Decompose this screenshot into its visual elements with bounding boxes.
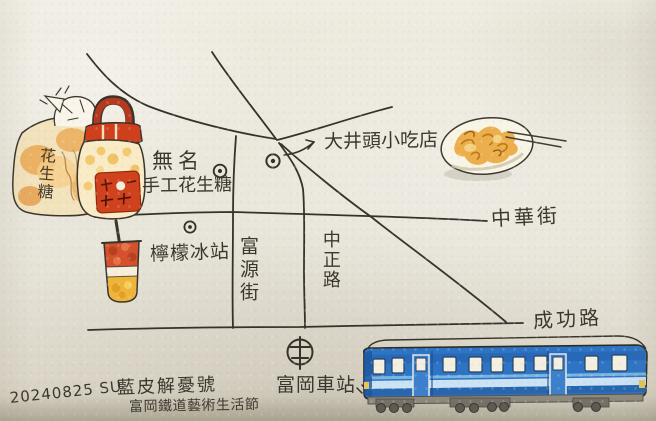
arrow-icon: [284, 140, 314, 155]
blue-train-illustration: [364, 336, 647, 413]
label-caption-festival: 富岡鐵道藝術生活節: [129, 398, 260, 415]
label-train-station: 富岡車站: [276, 376, 356, 396]
hand-drawn-map: 無名 手工花生糖 大井頭小吃店 中華街 富源街 中正路 檸檬冰站 成功路 富岡車…: [0, 0, 656, 421]
snack-dish-illustration: [438, 113, 566, 181]
lemon-drink-cup-illustration: [102, 221, 141, 302]
poi-marker-lemon-icon: [184, 221, 195, 232]
label-street-fuyuan: 富源街: [237, 236, 257, 305]
label-peanut-shop-line1: 無名: [152, 150, 204, 172]
label-lemon-ice-stand: 檸檬冰站: [150, 243, 231, 266]
street-fuyuan-line: [233, 136, 236, 328]
label-peanut-shop-line2: 手工花生糖: [142, 176, 232, 196]
label-road-chenggong: 成功路: [532, 307, 602, 332]
road-north-diagonal: [212, 52, 276, 139]
poi-marker-snack-icon: [266, 154, 279, 167]
label-caption-train-name: 藍皮解憂號: [117, 376, 218, 398]
label-bag-text: 花生糖: [34, 146, 55, 201]
train-station-symbol-icon: [288, 337, 313, 369]
label-snack-shop: 大井頭小吃店: [324, 131, 438, 153]
label-road-zhongzheng: 中正路: [320, 230, 339, 290]
road-zhongzheng-line: [279, 143, 305, 328]
label-street-zhonghua: 中華街: [490, 205, 560, 230]
street-zhonghua-line: [95, 212, 487, 221]
